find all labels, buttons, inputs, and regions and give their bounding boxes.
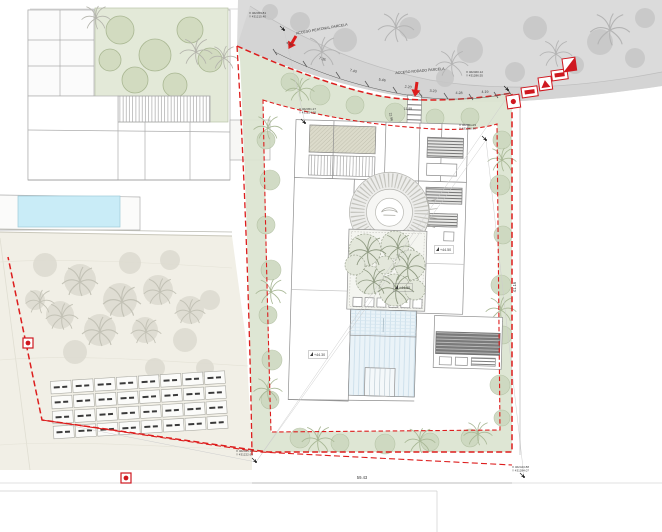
garden-bed-label-mark: [63, 401, 68, 403]
garden-bed-label-mark: [130, 412, 135, 414]
site-plan-sheet: ACCESO PEATONAL PARCELAACCESO RODADO PAR…: [0, 0, 662, 532]
garden-bed-label-mark: [150, 380, 155, 382]
garden-bed: [51, 395, 72, 409]
garden-bed-label-mark: [166, 424, 172, 426]
garden-bed-label-mark: [186, 393, 192, 395]
tree-blob: [257, 131, 275, 149]
tree-blob: [457, 37, 483, 63]
tree-blob: [523, 16, 547, 40]
tree-blob: [122, 67, 148, 93]
garden-bed-label-mark: [76, 385, 82, 387]
tree-blob: [494, 410, 510, 426]
spot-elevation-label: +44.50: [399, 286, 410, 290]
dark-louver-roof: [436, 332, 501, 356]
neighbor-villa: [0, 6, 270, 232]
garden-bed-label-mark: [62, 386, 67, 388]
tree-blob: [63, 340, 87, 364]
garden-bed: [204, 371, 225, 385]
site-plan-drawing: ACCESO PEATONAL PARCELAACCESO RODADO PAR…: [0, 0, 662, 532]
garden-bed-label-mark: [98, 383, 104, 385]
tree-blob: [173, 328, 197, 352]
garden-bed-label-mark: [107, 398, 112, 400]
garden-bed-label-mark: [121, 412, 127, 414]
garden-bed: [184, 402, 205, 416]
garden-bed-label-mark: [55, 401, 61, 403]
tree-blob: [505, 62, 525, 82]
garden-bed-label-mark: [164, 379, 170, 381]
garden-bed-label-mark: [207, 377, 213, 379]
garden-bed-label-mark: [84, 384, 89, 386]
garden-bed-label-mark: [142, 396, 148, 398]
garden-bed-label-mark: [152, 410, 157, 412]
garden-bed: [205, 386, 226, 400]
garden-bed-label-mark: [128, 382, 133, 384]
coordinate-label: Y 431284.07: [512, 469, 529, 473]
garden-bed-label-mark: [172, 379, 177, 381]
garden-bed-label-mark: [64, 416, 69, 418]
garden-bed-label-mark: [174, 409, 179, 411]
garden-bed-label-mark: [78, 430, 84, 432]
deck-strip: [308, 155, 375, 177]
garden-bed: [140, 405, 161, 419]
coordinate-label: Y 431222.63: [236, 453, 253, 457]
interior-stair: [364, 368, 395, 397]
tree-blob: [200, 290, 220, 310]
garden-bed-label-mark: [164, 394, 170, 396]
garden-bed-label-mark: [194, 378, 199, 380]
coordinate-label: Y 431286.55: [466, 74, 483, 78]
garden-bed-label-mark: [187, 408, 193, 410]
garden-bed: [160, 373, 181, 387]
garden-bed: [72, 379, 93, 393]
garden-bed-label-mark: [86, 414, 91, 416]
louver-skylight: [426, 187, 462, 204]
garden-bed-label-mark: [175, 424, 180, 426]
neighbor-pool: [18, 196, 120, 227]
garden-bed: [118, 406, 139, 420]
tree-blob: [106, 16, 134, 44]
garden-bed: [53, 425, 74, 439]
dimension-label: 3.23: [429, 89, 436, 93]
garden-bed: [74, 409, 95, 423]
tree-blob: [261, 260, 281, 280]
tree-blob: [490, 175, 510, 195]
garden-bed: [116, 376, 137, 390]
garden-bed: [206, 401, 227, 415]
garden-bed: [117, 391, 138, 405]
garden-bed-label-mark: [56, 431, 62, 433]
garden-bed-label-mark: [219, 421, 224, 423]
tree-blob: [160, 250, 180, 270]
garden-bed: [138, 375, 159, 389]
spot-elevation-label: +44.50: [440, 248, 451, 252]
garden-bed-label-mark: [217, 391, 222, 393]
garden-bed-label-mark: [195, 393, 200, 395]
dimension-label: 4.19: [481, 90, 488, 94]
tree-blob: [399, 17, 421, 39]
dimension-label: 41.16: [512, 281, 517, 292]
tree-blob: [385, 103, 405, 123]
garden-bed: [50, 380, 71, 394]
garden-bed-label-mark: [165, 409, 171, 411]
survey-marker: [121, 473, 131, 483]
tree-blob: [177, 17, 203, 43]
garden-bed: [162, 403, 183, 417]
garden-bed-label-mark: [188, 423, 194, 425]
tree-blob: [290, 428, 310, 448]
survey-marker: [23, 338, 33, 348]
garden-bed-label-mark: [65, 431, 70, 433]
garden-bed: [73, 394, 94, 408]
garden-bed-label-mark: [210, 422, 216, 424]
coordinate-label: Y 431224.18: [299, 111, 316, 115]
garden-bed-label-mark: [151, 395, 156, 397]
garden-bed: [183, 387, 204, 401]
tree-blob: [375, 434, 395, 454]
garden-bed: [207, 416, 228, 430]
tree-blob: [625, 48, 645, 68]
garden-bed-label-mark: [185, 378, 191, 380]
garden-bed-label-mark: [196, 408, 201, 410]
dimension-label: 4.28: [455, 91, 462, 95]
tree-blob: [405, 280, 425, 300]
garden-bed-label-mark: [153, 425, 158, 427]
garden-bed-label-mark: [106, 383, 111, 385]
garden-bed-label-mark: [121, 397, 127, 399]
garden-bed-label-mark: [108, 413, 113, 415]
tree-blob: [493, 131, 511, 149]
garden-bed-label-mark: [216, 376, 221, 378]
tree-blob: [461, 429, 479, 447]
spot-elevation-label: +44.30: [314, 353, 325, 357]
garden-bed-label-mark: [54, 386, 60, 388]
garden-bed-label-mark: [129, 397, 134, 399]
tree-blob: [262, 350, 282, 370]
coordinate-label: Y 431280.90: [459, 127, 476, 131]
dimension-label: 2.20: [404, 85, 411, 90]
garden-bed-label-mark: [218, 406, 223, 408]
tree-blob: [436, 69, 454, 87]
garden-bed-label-mark: [120, 382, 126, 384]
deck-slats: [118, 96, 210, 122]
garden-bed-label-mark: [131, 427, 136, 429]
coordinate-label: Y 431215.40: [249, 15, 266, 19]
garden-bed-label-mark: [143, 411, 149, 413]
garden-bed-label-mark: [142, 381, 148, 383]
garden-bed-label-mark: [85, 399, 90, 401]
tree-blob: [331, 434, 349, 452]
tree-blob: [346, 96, 364, 114]
tree-blob: [491, 275, 511, 295]
garden-bed-label-mark: [77, 415, 83, 417]
garden-bed-label-mark: [99, 413, 105, 415]
garden-bed-label-mark: [208, 392, 214, 394]
coordinate-arrow-icon: [482, 136, 486, 140]
garden-bed-label-mark: [209, 407, 215, 409]
garden-bed: [95, 392, 116, 406]
louver-skylight: [427, 137, 464, 158]
garden-bed: [185, 417, 206, 431]
garden-bed-label-mark: [197, 423, 202, 425]
garden-bed: [182, 372, 203, 386]
tree-blob: [421, 433, 439, 451]
garden-bed-label-mark: [173, 394, 178, 396]
garden-bed: [96, 407, 117, 421]
garden-bed: [163, 418, 184, 432]
tree-blob: [33, 253, 57, 277]
tree-blob: [99, 49, 121, 71]
tree-blob: [163, 73, 187, 97]
dimension-label: 59.43: [357, 475, 368, 480]
tree-blob: [587, 29, 613, 55]
garden-bed-label-mark: [122, 427, 128, 429]
tree-blob: [139, 39, 171, 71]
tree-blob: [333, 28, 357, 52]
garden-bed: [94, 377, 115, 391]
garden-bed-label-mark: [144, 426, 150, 428]
garden-bed-label-mark: [77, 400, 83, 402]
garden-bed: [161, 388, 182, 402]
tree-blob: [310, 85, 330, 105]
garden-bed: [139, 390, 160, 404]
garden-bed-label-mark: [99, 398, 105, 400]
tree-blob: [345, 255, 365, 275]
garden-bed-label-mark: [56, 416, 62, 418]
dimension-label: 11.95: [404, 107, 412, 111]
tree-blob: [119, 252, 141, 274]
garden-bed: [141, 420, 162, 434]
garage-structure: [433, 316, 502, 370]
tree-blob: [260, 170, 280, 190]
tree-blob: [635, 8, 655, 28]
